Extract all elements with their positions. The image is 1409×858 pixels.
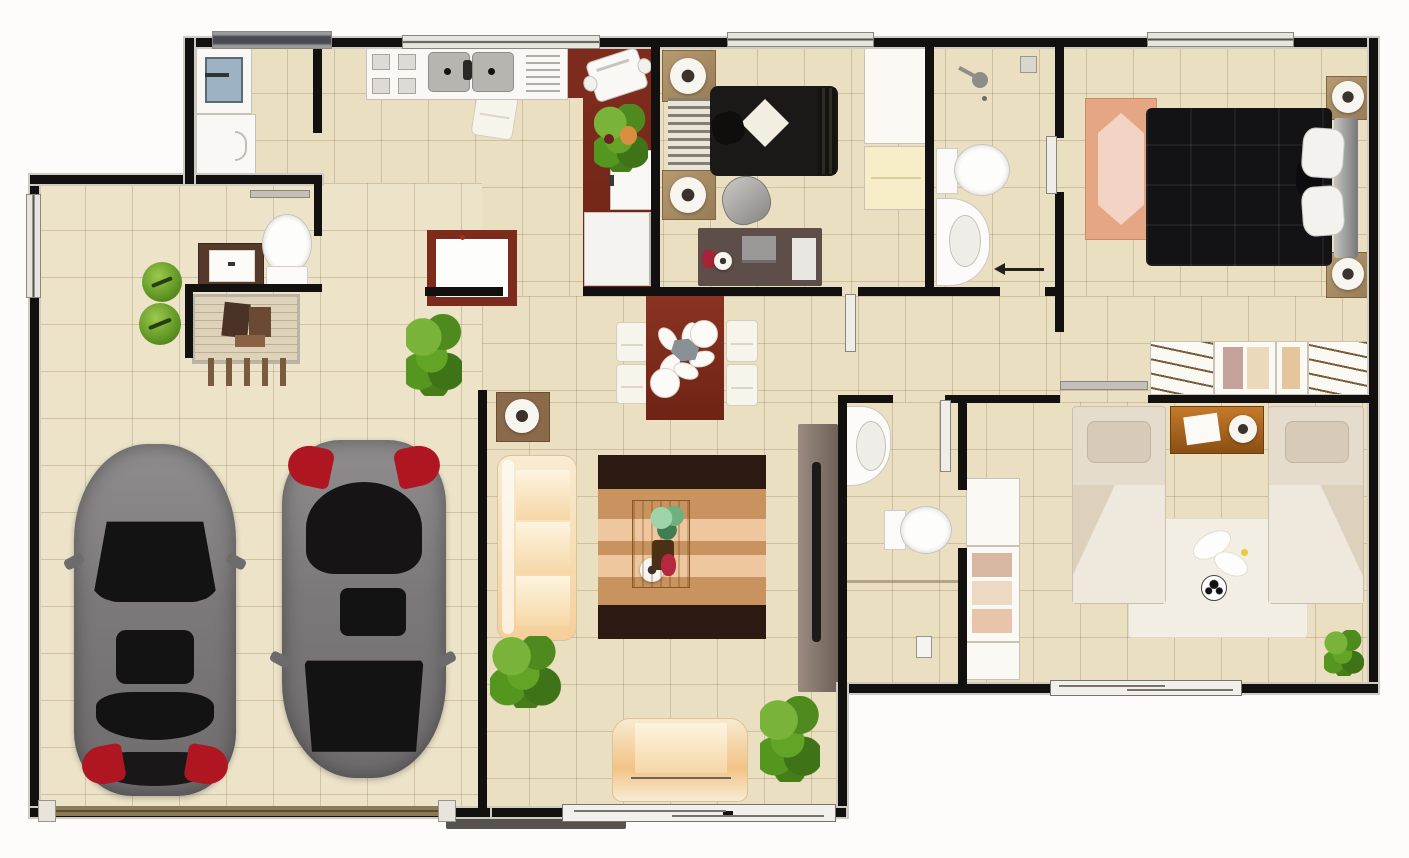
car-right — [282, 440, 446, 778]
door-leaf-kids — [1060, 381, 1148, 390]
island-knob — [460, 235, 465, 240]
kids-clock-icon — [1229, 415, 1257, 443]
kids-plant — [1324, 630, 1364, 676]
bench-leg-4 — [262, 358, 268, 386]
car-left — [74, 444, 236, 796]
bath2-divider-line — [847, 580, 958, 583]
kids-bed-right — [1268, 406, 1364, 604]
sofa-cushion-1 — [516, 470, 570, 520]
toy-dot — [1241, 549, 1248, 556]
diamond-pillow — [741, 99, 789, 147]
garage-door-post-left — [38, 800, 56, 822]
wall-kitchen-bottom — [583, 287, 659, 296]
stove-burner-2 — [398, 54, 416, 70]
powder-faucet — [228, 262, 235, 266]
wall-laundry-right — [313, 38, 322, 133]
sliding-door-handle — [723, 811, 733, 815]
wall-powder-bottom — [185, 284, 322, 292]
garage-door-post-right — [438, 800, 456, 822]
window-bedroom2 — [727, 32, 874, 47]
car-left-sunroof — [116, 630, 194, 684]
kids-bed-left — [1072, 406, 1166, 604]
door-leaf-master — [1046, 136, 1057, 194]
wall-bedroom2-bath1-divider — [925, 38, 934, 296]
light-switch — [916, 636, 932, 658]
wall-bath2-right-lower — [958, 548, 967, 684]
console-item-3 — [235, 335, 265, 347]
coffee-maker-line — [596, 59, 629, 72]
dining-chair-1 — [616, 322, 648, 362]
door-leaf-bedroom2 — [845, 294, 856, 352]
kids-bed-left-pillow — [1087, 421, 1151, 463]
coffee-table-plant — [648, 504, 686, 544]
round-plate-1 — [690, 320, 718, 348]
clothes-pile-cream — [1247, 347, 1269, 389]
garage-door — [52, 806, 442, 816]
wall-bath2-right-upper — [958, 403, 967, 490]
car-right-sunroof — [340, 588, 406, 636]
plant-by-island — [406, 314, 462, 396]
bath1-basin — [949, 215, 981, 267]
wall-bath2-left — [838, 395, 847, 684]
notepad-icon — [792, 238, 816, 280]
window-master — [1147, 32, 1294, 47]
wardrobe-pants — [1276, 341, 1308, 395]
dining-chair-3 — [726, 320, 758, 362]
master-rug-inner — [1098, 113, 1144, 225]
car-right-windshield — [302, 650, 426, 756]
rug-band-bottom — [598, 605, 766, 639]
bedroom2-lamp-top — [670, 58, 706, 94]
wall-living-left — [478, 390, 487, 817]
stove-burner-4 — [398, 78, 416, 94]
kids-clothes-2 — [972, 581, 1012, 605]
bed-foot-texture — [818, 88, 836, 174]
bench-leg-1 — [208, 358, 214, 386]
console-bench — [192, 294, 300, 364]
bath2-basin — [856, 421, 886, 471]
bath1-toilet-bowl — [954, 144, 1010, 196]
floor-plan — [0, 0, 1409, 858]
wall-right — [1369, 38, 1378, 693]
sofa — [497, 455, 577, 641]
fruit-plant-bowl — [594, 104, 648, 172]
wall-bath2-top-left — [847, 395, 893, 403]
pants-pile — [1282, 347, 1300, 389]
closet-shelf-line — [871, 177, 921, 179]
stove-burner-3 — [372, 78, 390, 94]
sofa-back-highlight — [502, 460, 514, 634]
washing-machine — [196, 46, 252, 114]
master-pillow-bottom — [1300, 185, 1345, 238]
car-left-body — [74, 444, 236, 796]
loveseat-seat — [635, 723, 727, 773]
clothes-pile-mauve — [1223, 347, 1243, 389]
sliding-door-living — [562, 804, 836, 822]
kids-closet-shelves — [966, 546, 1020, 642]
dish-rack — [526, 52, 560, 92]
paper-icon — [1183, 413, 1221, 445]
bedroom2-closet-shelf — [864, 146, 928, 210]
wardrobe-hangers-left — [1150, 341, 1214, 395]
wall-garage-top — [30, 175, 322, 184]
wall-bath2-top-right — [945, 395, 1058, 403]
master-lamp-top — [1332, 81, 1364, 113]
wall-bath1-master-lower — [1055, 192, 1064, 332]
wall-powder-right — [314, 176, 322, 236]
car-left-windshield — [88, 520, 222, 602]
cabinet-latch — [609, 175, 614, 186]
kids-bed-left-blanket — [1073, 485, 1165, 603]
sliding-door-kids — [1050, 680, 1242, 696]
car-left-rear-window — [96, 692, 214, 740]
bedroom2-headboard — [668, 98, 712, 170]
kids-clothes-3 — [972, 609, 1012, 633]
car-right-rear-window — [306, 482, 422, 574]
loveseat — [612, 718, 748, 802]
wardrobe-hangers-right — [1308, 341, 1368, 395]
wall-kitchen-bedroom-divider — [651, 38, 660, 296]
window-laundry — [212, 31, 332, 49]
red-cup-icon — [661, 554, 676, 576]
bedroom2-bed — [710, 86, 838, 176]
sink-drain-left — [444, 68, 451, 75]
faucet-icon — [463, 60, 472, 80]
powder-vanity — [198, 243, 264, 289]
floor-corridor — [482, 296, 1060, 402]
kids-closet-hangers-bottom — [966, 642, 1020, 680]
washer-window — [205, 57, 243, 103]
soccer-ball — [1201, 575, 1227, 601]
laptop-icon — [742, 236, 776, 263]
topiary-plant-1 — [142, 262, 182, 302]
tv-screen — [812, 462, 821, 642]
rug-band-top — [598, 455, 766, 489]
sofa-cushion-3 — [516, 576, 570, 626]
door-leaf-powder — [250, 190, 310, 198]
shower-drain — [982, 96, 987, 101]
console-item-1 — [221, 302, 250, 339]
powder-toilet-bowl — [262, 214, 312, 274]
stove-burner-1 — [372, 54, 390, 70]
wall-nook-left — [185, 284, 193, 358]
refrigerator — [584, 212, 658, 286]
round-plate-2 — [650, 368, 680, 398]
door-leaf-bath2 — [940, 400, 951, 472]
sink-drain-right — [488, 68, 495, 75]
bath2-toilet-bowl — [900, 506, 952, 554]
kids-bed-right-blanket — [1269, 485, 1363, 603]
garage-door-line — [52, 810, 442, 812]
bedroom2-desk — [698, 228, 822, 286]
tv-console — [798, 424, 838, 692]
wall-kids-top — [1148, 395, 1370, 403]
wardrobe-clothes — [1214, 341, 1276, 395]
cabinet-handle — [235, 131, 247, 161]
master-lamp-bottom — [1332, 258, 1364, 290]
wall-laundry-left — [185, 38, 194, 184]
dining-chair-4 — [726, 364, 758, 406]
laundry-cabinet — [196, 114, 256, 174]
vent-switch — [1020, 56, 1037, 73]
bedroom2-closet-hangers — [864, 48, 928, 144]
kids-bed-right-pillow — [1285, 421, 1349, 463]
bench-leg-3 — [244, 358, 250, 386]
wall-bath1-master-upper — [1055, 38, 1064, 138]
bedroom2-lamp-bottom — [670, 177, 706, 213]
bench-leg-5 — [280, 358, 286, 386]
black-pillow — [708, 108, 747, 147]
kids-nightstand — [1170, 406, 1264, 454]
bench-leg-2 — [226, 358, 232, 386]
console-item-2 — [249, 307, 271, 337]
topiary-plant-2 — [139, 303, 181, 345]
powder-sink — [209, 250, 255, 282]
washer-drum-bar — [205, 73, 229, 77]
master-pillow-top — [1300, 127, 1345, 180]
berry-icon — [604, 134, 614, 144]
kids-closet-hangers-top — [966, 478, 1020, 546]
wall-island-stub — [425, 287, 503, 296]
kids-clothes-1 — [972, 553, 1012, 577]
door-swing-arrow-head — [994, 263, 1005, 275]
window-kitchen — [402, 35, 600, 49]
side-table-lamp — [505, 399, 539, 433]
wall-living-right — [838, 684, 847, 817]
desk-plate — [714, 252, 732, 270]
plant-by-sofa — [490, 636, 562, 708]
sofa-cushion-2 — [516, 522, 570, 574]
plant-by-loveseat — [760, 696, 820, 782]
door-swing-arrow-line — [1004, 268, 1044, 271]
fruit-icon — [620, 126, 637, 145]
dining-chair-2 — [616, 364, 648, 404]
loveseat-back-line — [631, 777, 731, 779]
window-garage-left — [26, 194, 41, 298]
wall-bedroom2-bottom — [660, 287, 842, 296]
